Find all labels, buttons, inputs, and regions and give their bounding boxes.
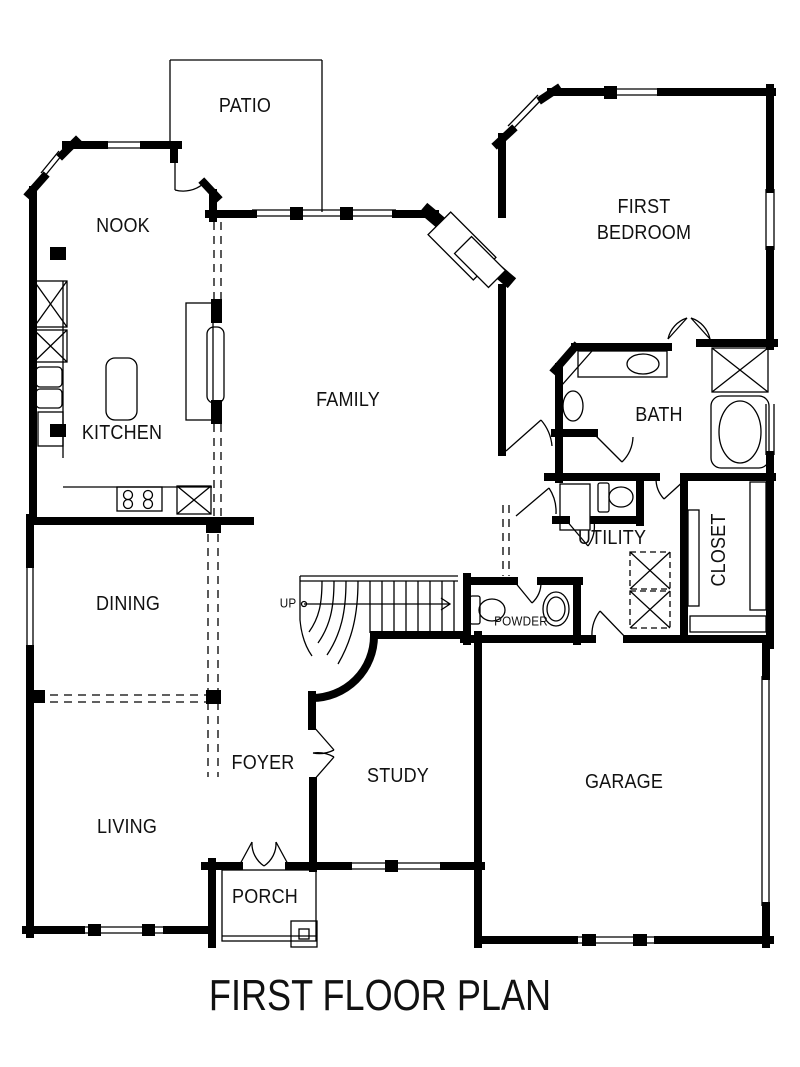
- cased-openings: [36, 222, 509, 777]
- garage-door: [762, 676, 769, 906]
- room-label-closet: CLOSET: [706, 513, 732, 586]
- kitchen-island: [106, 358, 137, 420]
- room-label-powder: POWDER: [494, 614, 548, 631]
- porch-column: [291, 921, 317, 947]
- bath-fixtures: [560, 348, 769, 530]
- vanity: [578, 351, 667, 377]
- washer-dryer: [630, 552, 670, 628]
- floor-plan: PATIO NOOK FIRST BEDROOM KITCHEN FAMILY …: [0, 0, 800, 1067]
- fireplace: [428, 212, 507, 287]
- room-label-patio: PATIO: [219, 93, 271, 119]
- room-label-family: FAMILY: [316, 387, 380, 413]
- kitchen-sink: [36, 367, 62, 387]
- room-label-living: LIVING: [97, 814, 157, 840]
- stairs: [300, 576, 458, 664]
- room-label-nook: NOOK: [96, 213, 150, 239]
- floor-plan-drawing: [0, 0, 800, 1067]
- toilet: [598, 483, 609, 512]
- range: [117, 487, 162, 511]
- room-label-study: STUDY: [367, 763, 429, 789]
- sink: [627, 354, 659, 374]
- bathtub: [711, 396, 769, 468]
- room-label-first-bedroom: FIRST BEDROOM: [597, 194, 691, 246]
- plan-title: FIRST FLOOR PLAN: [209, 971, 551, 1021]
- stairs-up-label: UP: [280, 596, 297, 613]
- kitchen-fixtures: [34, 281, 224, 514]
- room-label-garage: GARAGE: [585, 769, 663, 795]
- room-label-utility: UTILITY: [578, 525, 646, 551]
- room-label-bath: BATH: [635, 402, 682, 428]
- room-label-porch: PORCH: [232, 884, 298, 910]
- sink: [563, 391, 583, 421]
- room-label-foyer: FOYER: [232, 750, 295, 776]
- room-label-kitchen: KITCHEN: [82, 420, 162, 446]
- room-label-dining: DINING: [96, 591, 160, 617]
